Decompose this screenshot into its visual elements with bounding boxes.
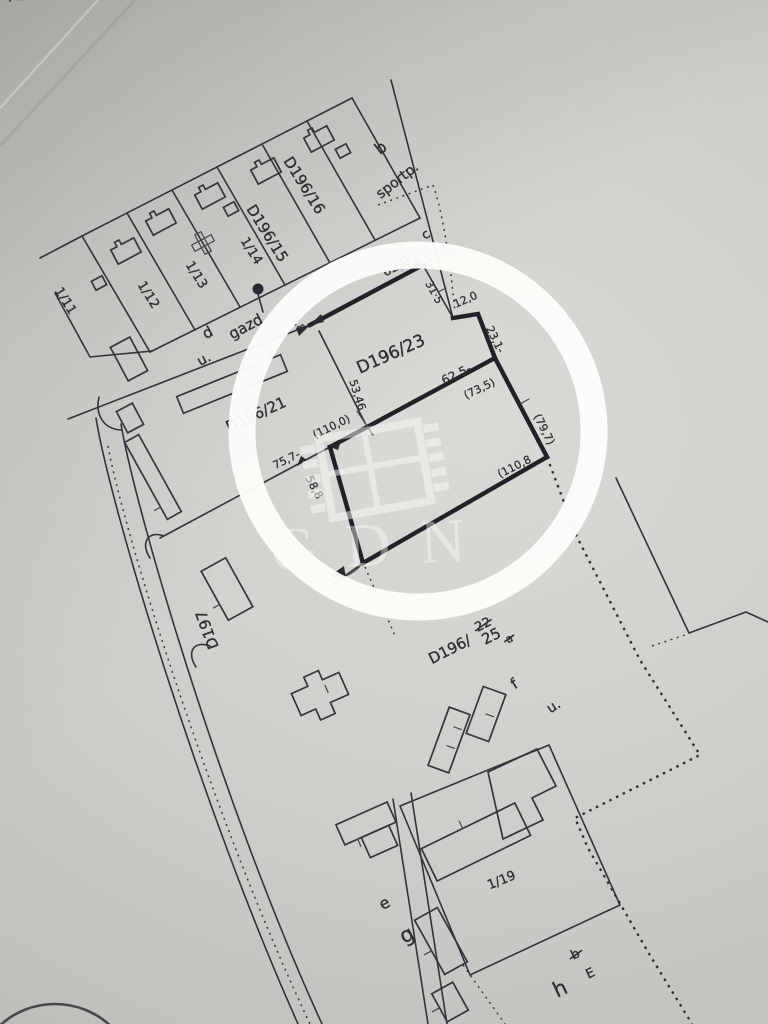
building-outline — [466, 686, 506, 741]
house-icon — [301, 121, 334, 152]
parcel-label-11: 1/11 — [51, 285, 79, 318]
building-outline — [110, 337, 147, 381]
street-sportpalya: sportp. — [373, 159, 422, 202]
building-outline — [287, 663, 353, 726]
letter-h: h — [549, 975, 571, 1002]
watermark: GDN — [269, 418, 497, 584]
building-outline — [428, 707, 470, 773]
house-icon — [223, 202, 238, 216]
parcel-label-19: 1/19 — [485, 868, 518, 893]
road-197-lines — [96, 397, 322, 1024]
building-outline — [119, 435, 182, 523]
paper-creases — [0, 0, 135, 146]
street-u-2: u. — [544, 696, 564, 717]
letter-b-struck: b — [566, 945, 586, 965]
building-outline — [418, 796, 531, 881]
cadastral-map-svg: D196/16 D196/15 1/14 1/13 1/12 1/11 b sp… — [0, 0, 768, 1024]
photographed-cadastral-map: D196/16 D196/15 1/14 1/13 1/12 1/11 b sp… — [0, 0, 768, 1024]
parcel-label-23: D196/23 — [354, 330, 429, 378]
house-icon — [108, 233, 141, 264]
parcel-label-12: 1/12 — [134, 279, 162, 312]
boundary-lines-right — [616, 478, 768, 646]
stamp-arc — [0, 1004, 135, 1024]
letter-e: e — [376, 892, 394, 913]
house-icon — [192, 178, 225, 209]
watermark-text: GDN — [269, 505, 497, 585]
house-icon — [143, 204, 176, 235]
dim-12-0: 12,0 — [452, 289, 480, 311]
dim-73-5: (73,5) — [462, 376, 497, 402]
dashed-boundary — [463, 457, 700, 1024]
parcel-label-24: D196/24 — [0, 0, 36, 5]
map-labels: D196/16 D196/15 1/14 1/13 1/12 1/11 b sp… — [0, 0, 597, 1002]
dim-53-46: 53,46 — [346, 378, 368, 412]
dim-31-5: 31·5 — [422, 278, 445, 306]
street-u-1: u. — [194, 349, 213, 369]
letter-b: b — [371, 137, 391, 158]
parcel-label-16: D196/16 — [280, 153, 329, 217]
building-outline — [488, 749, 556, 839]
house-icon — [335, 144, 350, 158]
building-outline — [116, 403, 143, 433]
parcel-band-boundaries — [40, 98, 420, 357]
letter-f: f — [507, 674, 522, 692]
parcel-label-25-base: D196/ — [425, 631, 474, 668]
letter-E: E — [584, 965, 598, 982]
house-icon — [91, 276, 106, 290]
dim-62-5: 62,5- — [439, 361, 473, 387]
dim-75-7: 75,7- — [271, 448, 302, 472]
parcel-label-13: 1/13 — [182, 259, 210, 292]
letter-d: d — [199, 322, 216, 342]
